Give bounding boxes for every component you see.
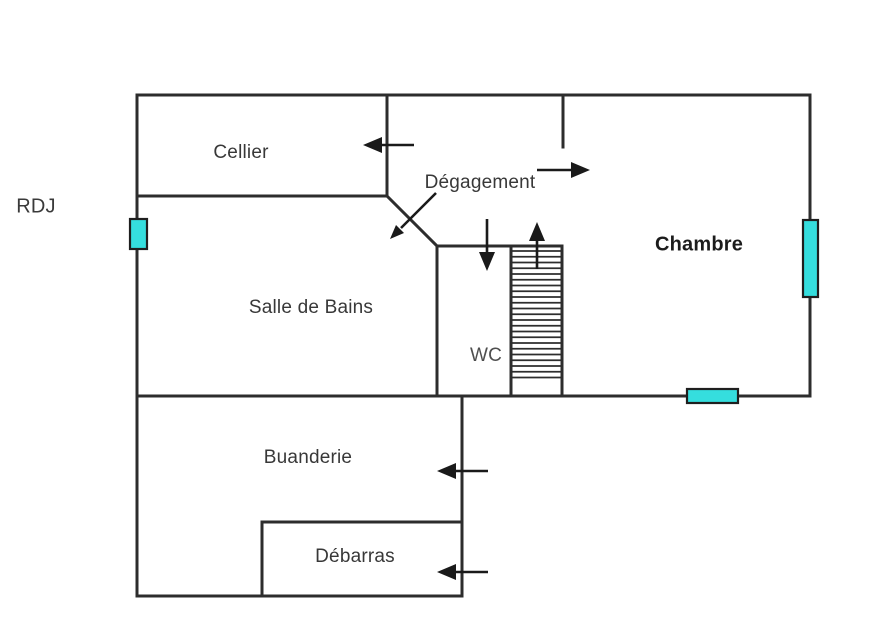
room-label-buanderie: Buanderie [264, 447, 352, 469]
floor-label: RDJ [16, 196, 56, 219]
room-label-wc: WC [470, 345, 502, 367]
room-label-cellier: Cellier [213, 142, 268, 164]
staircase-treads [512, 251, 561, 378]
salle-de-bains-chamfer-wall [387, 196, 437, 246]
salle-de-bains-door-arrow [390, 193, 436, 239]
left-wall-window [130, 219, 147, 249]
chambre-door-arrow [537, 162, 590, 178]
floor-plan-drawing [0, 0, 893, 639]
right-wall-window [803, 220, 818, 297]
floor-plan: RDJ Cellier Dégagement Chambre Salle de … [0, 0, 893, 639]
bottom-wall-window [687, 389, 738, 403]
room-label-salle-de-bains: Salle de Bains [249, 297, 373, 319]
room-label-debarras: Débarras [315, 546, 395, 568]
room-label-degagement: Dégagement [425, 172, 536, 194]
room-label-chambre: Chambre [655, 234, 743, 257]
